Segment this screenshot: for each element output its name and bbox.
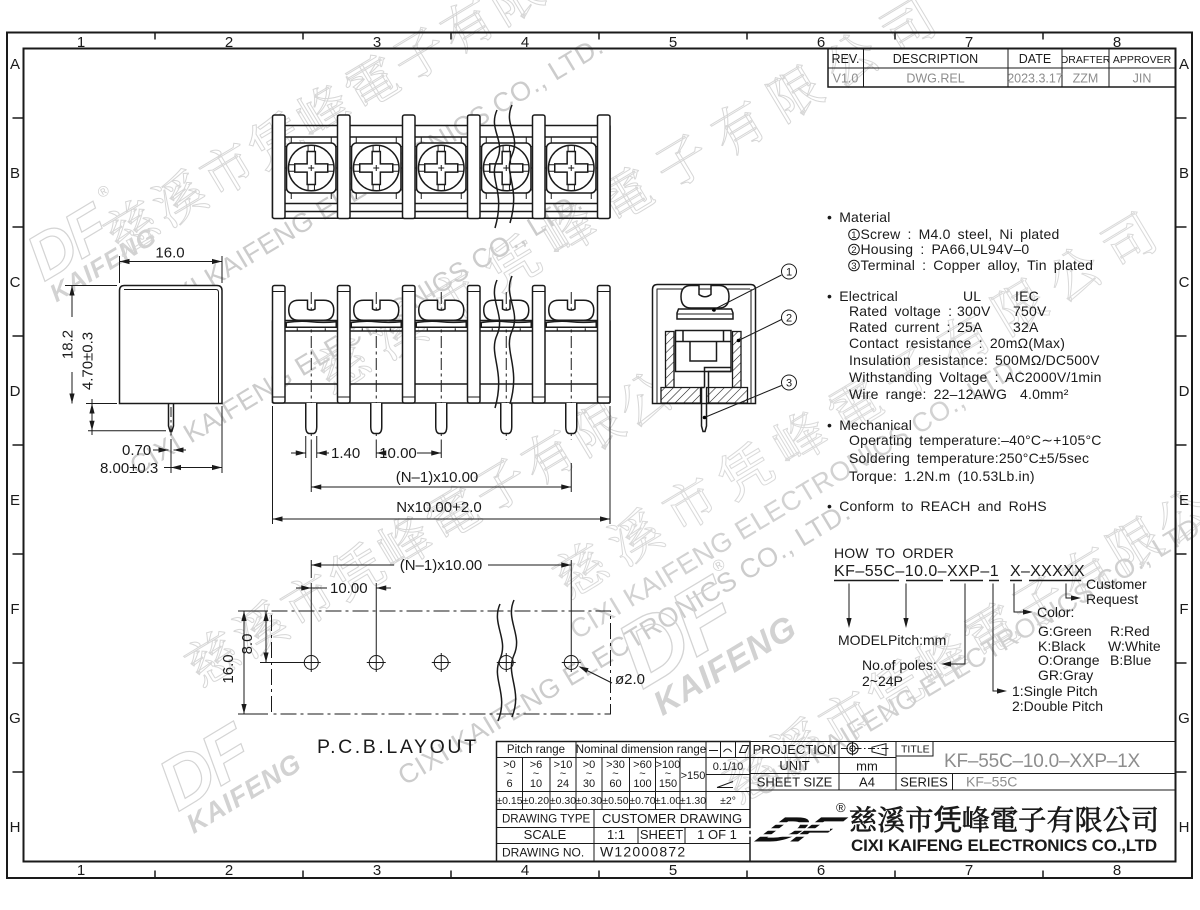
svg-text:100: 100 xyxy=(633,778,651,790)
svg-text:3: 3 xyxy=(786,378,792,390)
svg-text:JIN: JIN xyxy=(1133,72,1152,86)
svg-text:Terminal : Copper alloy, Tin p: Terminal : Copper alloy, Tin plated xyxy=(861,257,1094,273)
svg-text:7: 7 xyxy=(965,34,973,51)
svg-text:2:Double Pitch: 2:Double Pitch xyxy=(1012,698,1103,714)
svg-text:W12000872: W12000872 xyxy=(600,844,686,860)
svg-text:H: H xyxy=(10,819,21,836)
svg-text:APPROVER: APPROVER xyxy=(1113,54,1172,66)
svg-text:ø2.0: ø2.0 xyxy=(615,671,645,688)
svg-text:8: 8 xyxy=(1113,34,1121,51)
svg-text:1:Single Pitch: 1:Single Pitch xyxy=(1012,683,1098,699)
svg-text:IEC: IEC xyxy=(1015,288,1039,304)
svg-text:• Conform to REACH and RoHS: • Conform to REACH and RoHS xyxy=(827,498,1047,514)
svg-text:5: 5 xyxy=(669,34,677,51)
svg-text:Torque: 1.2N.m (10.53Lb.in): Torque: 1.2N.m (10.53Lb.in) xyxy=(849,468,1035,484)
svg-text:Rated current :: Rated current : xyxy=(849,319,951,335)
svg-text:18.2: 18.2 xyxy=(60,330,77,359)
svg-text:2: 2 xyxy=(786,313,792,325)
svg-text:Housing : PA66,UL94V–0: Housing : PA66,UL94V–0 xyxy=(861,241,1030,257)
svg-text:ZZM: ZZM xyxy=(1073,72,1099,86)
svg-text:>150: >150 xyxy=(681,770,706,782)
svg-text:0.70: 0.70 xyxy=(122,442,151,459)
svg-text:H: H xyxy=(1179,819,1190,836)
svg-text:Operating temperature:–40°C∼+1: Operating temperature:–40°C∼+105°C xyxy=(849,432,1102,448)
svg-text:1: 1 xyxy=(786,267,792,279)
svg-text:A: A xyxy=(1179,56,1189,73)
svg-text:R:Red: R:Red xyxy=(1110,623,1150,639)
svg-text:5: 5 xyxy=(669,862,677,879)
svg-text:3: 3 xyxy=(851,261,856,272)
svg-text:0.1/10: 0.1/10 xyxy=(713,761,744,773)
svg-text:SHEET SIZE: SHEET SIZE xyxy=(757,775,833,790)
svg-text:MODEL: MODEL xyxy=(838,632,888,648)
svg-text:±0.15: ±0.15 xyxy=(496,795,522,807)
svg-text:±0.20: ±0.20 xyxy=(523,795,549,807)
svg-text:SCALE: SCALE xyxy=(524,827,567,842)
svg-text:1: 1 xyxy=(77,862,85,879)
svg-text:慈溪市凭峰電子有限公司: 慈溪市凭峰電子有限公司 xyxy=(849,799,1159,839)
svg-text:Soldering temperature:250°C±5/: Soldering temperature:250°C±5/5sec xyxy=(849,450,1089,466)
svg-text:8.00±0.3: 8.00±0.3 xyxy=(100,460,158,477)
svg-text:DRAFTER: DRAFTER xyxy=(1061,54,1111,66)
svg-text:Rated voltage :: Rated voltage : xyxy=(849,303,952,319)
svg-text:(N–1)x10.00: (N–1)x10.00 xyxy=(400,557,483,574)
svg-text:O:Orange: O:Orange xyxy=(1038,652,1100,668)
svg-text:4: 4 xyxy=(521,34,529,51)
svg-text:6: 6 xyxy=(506,778,512,790)
svg-text:2: 2 xyxy=(225,862,233,879)
svg-text:P.C.B.LAYOUT: P.C.B.LAYOUT xyxy=(317,736,479,758)
svg-text:6: 6 xyxy=(817,34,825,51)
svg-text:±1.00: ±1.00 xyxy=(655,795,681,807)
svg-text:KF–55C–10.0–XXP–1X: KF–55C–10.0–XXP–1X xyxy=(944,751,1141,772)
svg-text:10: 10 xyxy=(530,778,542,790)
svg-text:3: 3 xyxy=(373,862,381,879)
svg-text:SHEET: SHEET xyxy=(640,827,683,842)
svg-text:4.70±0.3: 4.70±0.3 xyxy=(80,332,97,390)
svg-text:±1.30: ±1.30 xyxy=(680,795,706,807)
svg-text:C: C xyxy=(10,274,21,291)
svg-text:DRAWING TYPE: DRAWING TYPE xyxy=(502,814,591,826)
svg-text:16.0: 16.0 xyxy=(155,245,184,262)
svg-text:4: 4 xyxy=(521,862,529,879)
svg-text:UNIT: UNIT xyxy=(779,758,809,773)
svg-text:SERIES: SERIES xyxy=(900,775,948,790)
svg-text:Nx10.00+2.0: Nx10.00+2.0 xyxy=(396,499,481,516)
svg-text:±0.30: ±0.30 xyxy=(550,795,576,807)
svg-text:4.0mm²: 4.0mm² xyxy=(1020,386,1069,402)
svg-text:2: 2 xyxy=(225,34,233,51)
svg-text:Withstanding Voltage : AC2000V: Withstanding Voltage : AC2000V/1min xyxy=(849,369,1102,385)
svg-text:TITLE: TITLE xyxy=(901,744,930,756)
svg-text:• Mechanical: • Mechanical xyxy=(827,417,912,433)
svg-text:16.0: 16.0 xyxy=(220,654,237,683)
svg-text:DATE: DATE xyxy=(1019,52,1051,66)
svg-text:X–XXXXX: X–XXXXX xyxy=(1010,563,1085,580)
svg-text:24: 24 xyxy=(557,778,569,790)
svg-text:G:Green: G:Green xyxy=(1038,623,1092,639)
svg-text:KF–55C: KF–55C xyxy=(966,774,1017,790)
svg-text:A4: A4 xyxy=(859,775,875,790)
svg-text:Insulation resistance: 500MΩ/D: Insulation resistance: 500MΩ/DC500V xyxy=(849,352,1100,368)
svg-text:±0.30: ±0.30 xyxy=(576,795,602,807)
svg-text:10.00: 10.00 xyxy=(379,445,417,462)
svg-text:DESCRIPTION: DESCRIPTION xyxy=(893,52,978,66)
svg-text:No.of poles:: No.of poles: xyxy=(862,657,937,673)
svg-text:UL: UL xyxy=(963,288,981,304)
svg-text:E: E xyxy=(1179,492,1189,509)
svg-text:V1.0: V1.0 xyxy=(833,72,859,86)
svg-text:E: E xyxy=(10,492,20,509)
svg-text:GR:Gray: GR:Gray xyxy=(1038,667,1093,683)
svg-text:F: F xyxy=(10,601,19,618)
svg-text:CUSTOMER DRAWING: CUSTOMER DRAWING xyxy=(602,811,742,826)
svg-text:7: 7 xyxy=(965,862,973,879)
svg-text:A: A xyxy=(10,56,20,73)
svg-text:300V: 300V xyxy=(957,303,991,319)
svg-text:2: 2 xyxy=(851,245,856,256)
svg-text:Request: Request xyxy=(1086,591,1138,607)
svg-text:150: 150 xyxy=(659,778,677,790)
svg-text:B: B xyxy=(1179,165,1189,182)
svg-text:Customer: Customer xyxy=(1086,576,1147,592)
svg-text:Contact resistance : 20mΩ(Max): Contact resistance : 20mΩ(Max) xyxy=(849,335,1065,351)
svg-text:(N–1)x10.00: (N–1)x10.00 xyxy=(396,469,479,486)
svg-text:±0.50: ±0.50 xyxy=(602,795,628,807)
svg-text:F: F xyxy=(1179,601,1188,618)
svg-text:1: 1 xyxy=(851,230,856,241)
svg-text:2023.3.17: 2023.3.17 xyxy=(1007,72,1063,86)
svg-text:8: 8 xyxy=(1113,862,1121,879)
svg-text:CIXI KAIFENG ELECTRONICS CO.,L: CIXI KAIFENG ELECTRONICS CO.,LTD xyxy=(851,836,1157,855)
svg-text:1.40: 1.40 xyxy=(331,445,360,462)
svg-text:B: B xyxy=(10,165,20,182)
svg-text:1:1: 1:1 xyxy=(607,827,625,842)
svg-text:2~24P: 2~24P xyxy=(862,673,903,689)
svg-text:G: G xyxy=(1178,710,1190,727)
svg-text:6: 6 xyxy=(817,862,825,879)
svg-text:10.00: 10.00 xyxy=(330,580,368,597)
svg-text:±0.70: ±0.70 xyxy=(629,795,655,807)
svg-text:30: 30 xyxy=(583,778,595,790)
svg-text:• Material: • Material xyxy=(827,209,891,225)
svg-text:REV.: REV. xyxy=(831,52,859,66)
svg-text:Screw : M4.0 steel, Ni plated: Screw : M4.0 steel, Ni plated xyxy=(861,226,1060,242)
svg-text:Nominal dimension range: Nominal dimension range xyxy=(576,744,706,756)
svg-text:HOW TO ORDER: HOW TO ORDER xyxy=(834,545,954,561)
svg-text:B:Blue: B:Blue xyxy=(1110,652,1151,668)
svg-text:®: ® xyxy=(836,800,846,815)
svg-text:Pitch range: Pitch range xyxy=(507,744,565,756)
svg-text:DWG.REL: DWG.REL xyxy=(906,72,964,86)
svg-text:1 OF 1: 1 OF 1 xyxy=(697,827,737,842)
svg-text:G: G xyxy=(9,710,21,727)
svg-text:D: D xyxy=(1179,383,1190,400)
svg-text:8.0: 8.0 xyxy=(239,634,256,655)
svg-text:3: 3 xyxy=(373,34,381,51)
svg-text:DRAWING NO.: DRAWING NO. xyxy=(502,846,584,860)
svg-text:25A: 25A xyxy=(957,319,983,335)
svg-text:32A: 32A xyxy=(1013,319,1039,335)
svg-text:• Electrical: • Electrical xyxy=(827,288,898,304)
svg-text:750V: 750V xyxy=(1013,303,1047,319)
svg-text:±2°: ±2° xyxy=(720,795,736,807)
svg-text:Pitch:mm: Pitch:mm xyxy=(888,632,946,648)
svg-text:60: 60 xyxy=(609,778,621,790)
svg-text:Wire range: 22–12AWG: Wire range: 22–12AWG xyxy=(849,386,1007,402)
svg-text:PROJECTION: PROJECTION xyxy=(753,742,837,757)
svg-text:C: C xyxy=(1179,274,1190,291)
svg-text:mm: mm xyxy=(856,759,878,774)
svg-text:D: D xyxy=(10,383,21,400)
svg-text:Color:: Color: xyxy=(1037,604,1074,620)
svg-text:KF–55C–10.0–XXP–1: KF–55C–10.0–XXP–1 xyxy=(834,563,999,580)
svg-text:1: 1 xyxy=(77,34,85,51)
